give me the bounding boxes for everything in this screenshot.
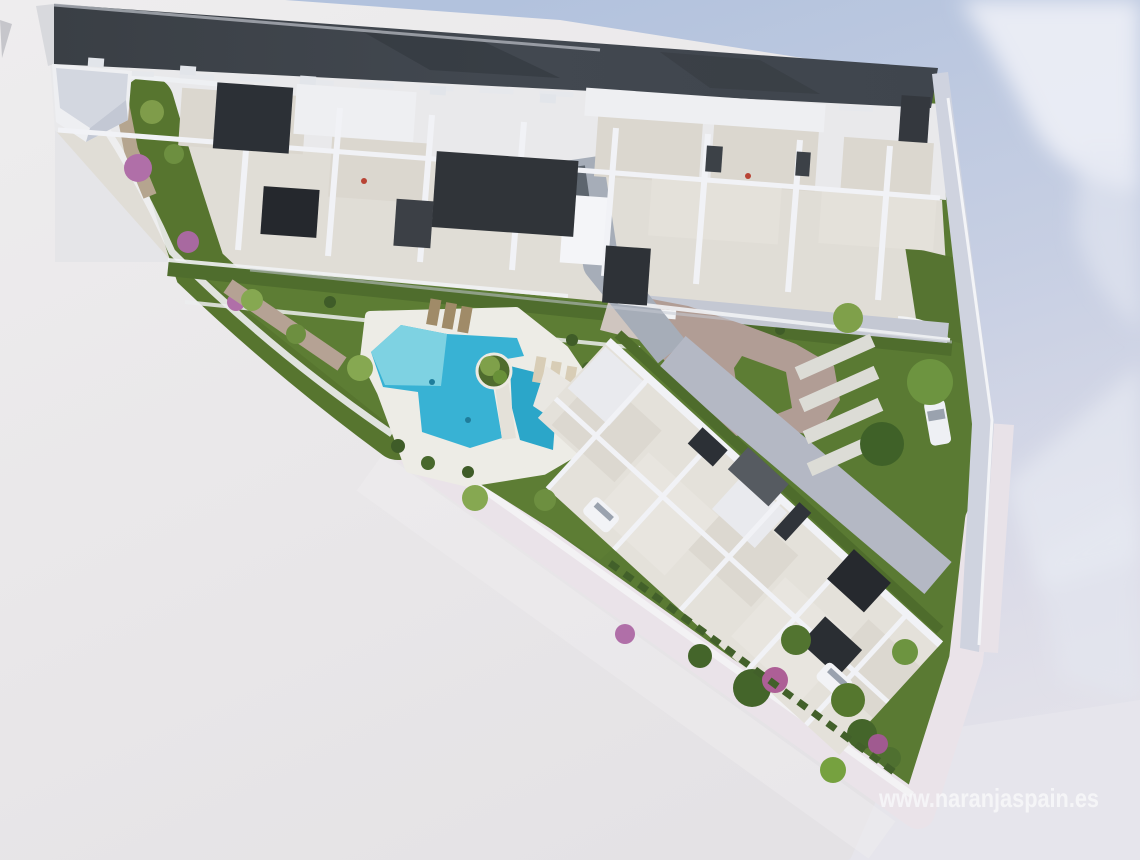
svg-text:www.naranjaspain.es: www.naranjaspain.es: [878, 783, 1099, 813]
